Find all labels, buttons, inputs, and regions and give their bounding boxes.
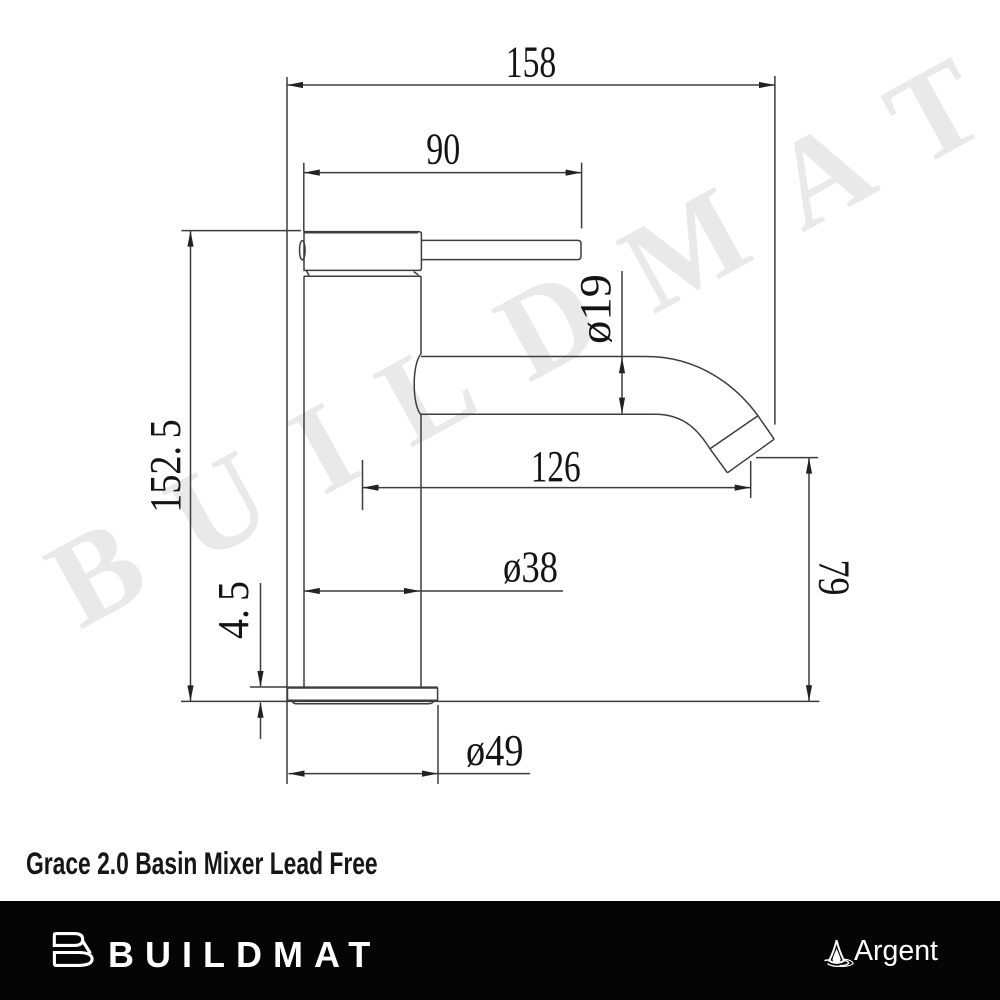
- svg-text:126: 126: [531, 442, 581, 491]
- svg-text:ø19: ø19: [571, 274, 620, 344]
- svg-text:ø49: ø49: [466, 726, 524, 775]
- svg-text:152. 5: 152. 5: [141, 419, 190, 513]
- svg-text:158: 158: [506, 38, 557, 87]
- svg-text:90: 90: [426, 125, 460, 174]
- svg-text:ø38: ø38: [503, 543, 558, 592]
- svg-text:4. 5: 4. 5: [209, 581, 258, 639]
- svg-text:79: 79: [810, 560, 859, 596]
